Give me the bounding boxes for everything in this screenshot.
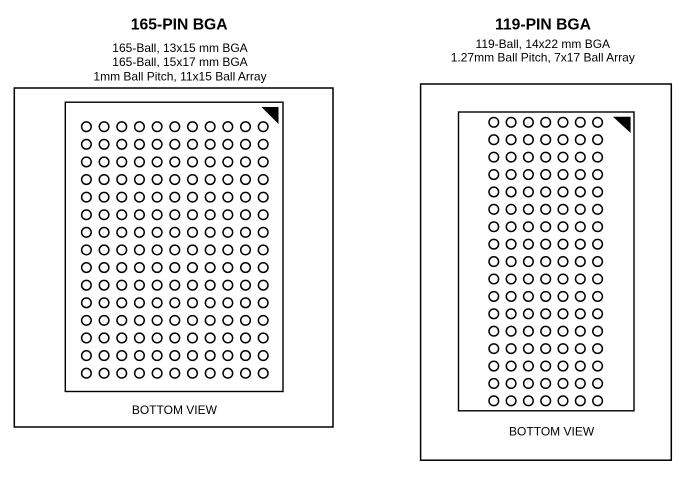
svg-text:165-Ball, 13x15 mm BGA: 165-Ball, 13x15 mm BGA <box>112 41 247 55</box>
svg-text:119-PIN BGA: 119-PIN BGA <box>495 16 591 33</box>
svg-text:119-Ball, 14x22 mm BGA: 119-Ball, 14x22 mm BGA <box>476 37 611 51</box>
svg-text:BOTTOM VIEW: BOTTOM VIEW <box>132 403 218 417</box>
svg-text:1.27mm Ball Pitch, 7x17 Ball A: 1.27mm Ball Pitch, 7x17 Ball Array <box>451 51 635 65</box>
svg-text:1mm Ball Pitch, 11x15 Ball Arr: 1mm Ball Pitch, 11x15 Ball Array <box>93 69 266 83</box>
svg-text:165-PIN BGA: 165-PIN BGA <box>131 16 228 33</box>
svg-text:165-Ball, 15x17 mm BGA: 165-Ball, 15x17 mm BGA <box>112 55 247 69</box>
svg-text:BOTTOM VIEW: BOTTOM VIEW <box>509 424 595 438</box>
